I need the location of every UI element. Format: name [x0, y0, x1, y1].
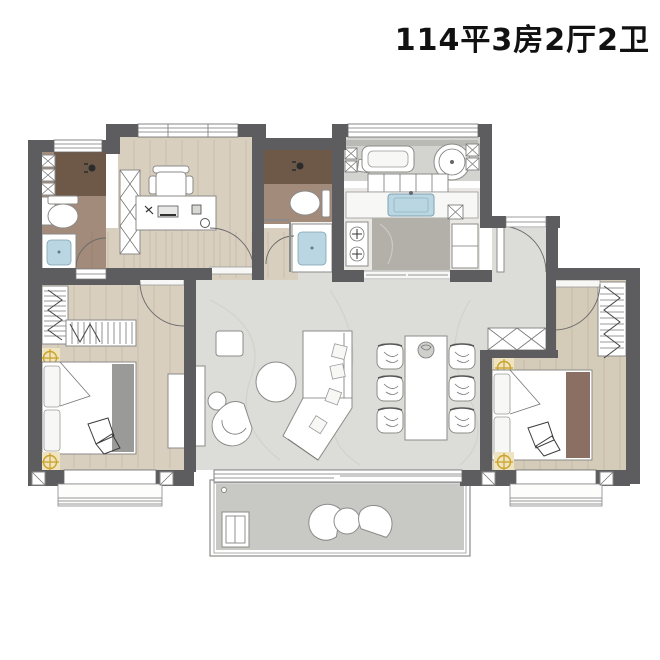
- corner-box: [448, 205, 463, 219]
- ceiling-light-icon: [40, 452, 60, 472]
- sink-icon: [292, 224, 332, 272]
- balcony-sliding-door: [214, 470, 462, 482]
- entry-threshold: [506, 217, 546, 227]
- kitchen: [346, 191, 478, 279]
- laundry-tub-inner: [368, 151, 408, 167]
- sofa-pillow: [330, 364, 345, 379]
- pillow: [494, 417, 510, 457]
- pillow: [44, 410, 60, 451]
- pillow: [44, 366, 60, 407]
- dining-chair: [377, 376, 403, 401]
- ceiling-light-icon: [494, 452, 514, 472]
- kitchen-sink-icon: [388, 191, 434, 216]
- toilet-icon: [290, 190, 330, 217]
- window-bathroom-1: [54, 140, 102, 152]
- floor-plan-page: 114平3房2厅2卫: [0, 0, 660, 660]
- pillow: [494, 374, 510, 414]
- balcony-table: [334, 508, 360, 534]
- stove-icon: [346, 222, 368, 266]
- plan-title: 114平3房2厅2卫: [395, 23, 650, 58]
- floor-plan: 114平3房2厅2卫: [0, 0, 660, 660]
- dining-chair: [377, 344, 403, 369]
- tv-console: [195, 366, 205, 446]
- coffee-table: [256, 362, 296, 402]
- window-study: [138, 124, 238, 137]
- ottoman: [216, 331, 243, 356]
- bed: [492, 370, 592, 460]
- dining-chair: [449, 408, 475, 433]
- laundry-balcony: [345, 140, 479, 192]
- entry-door-leaf: [497, 226, 504, 272]
- master-door-leaf: [554, 280, 600, 287]
- balcony-cabinet: [222, 512, 249, 547]
- wardrobe: [66, 320, 136, 346]
- shoe-cabinet: [488, 328, 546, 350]
- desk: [136, 196, 216, 230]
- bed-runner: [566, 372, 590, 458]
- dining-chair: [449, 376, 475, 401]
- bed: [42, 362, 136, 454]
- study-door-leaf: [210, 267, 254, 274]
- drain-icon: [222, 488, 227, 493]
- sofa-pillow: [331, 344, 347, 360]
- dining-chair: [449, 344, 475, 369]
- toilet-icon: [48, 196, 78, 228]
- bathroom-1-threshold: [76, 269, 106, 279]
- kitchen-island: [372, 218, 450, 270]
- dining-chair: [377, 408, 403, 433]
- desk-chair: [149, 166, 193, 198]
- dresser: [168, 374, 185, 448]
- sink-icon: [42, 234, 76, 270]
- kitchen-step: [368, 174, 448, 192]
- window-laundry: [348, 124, 478, 137]
- closet-rack: [42, 286, 68, 344]
- table-decor: [418, 342, 434, 358]
- bathroom-1-shower-floor: [54, 152, 106, 196]
- master-closet: [598, 282, 626, 358]
